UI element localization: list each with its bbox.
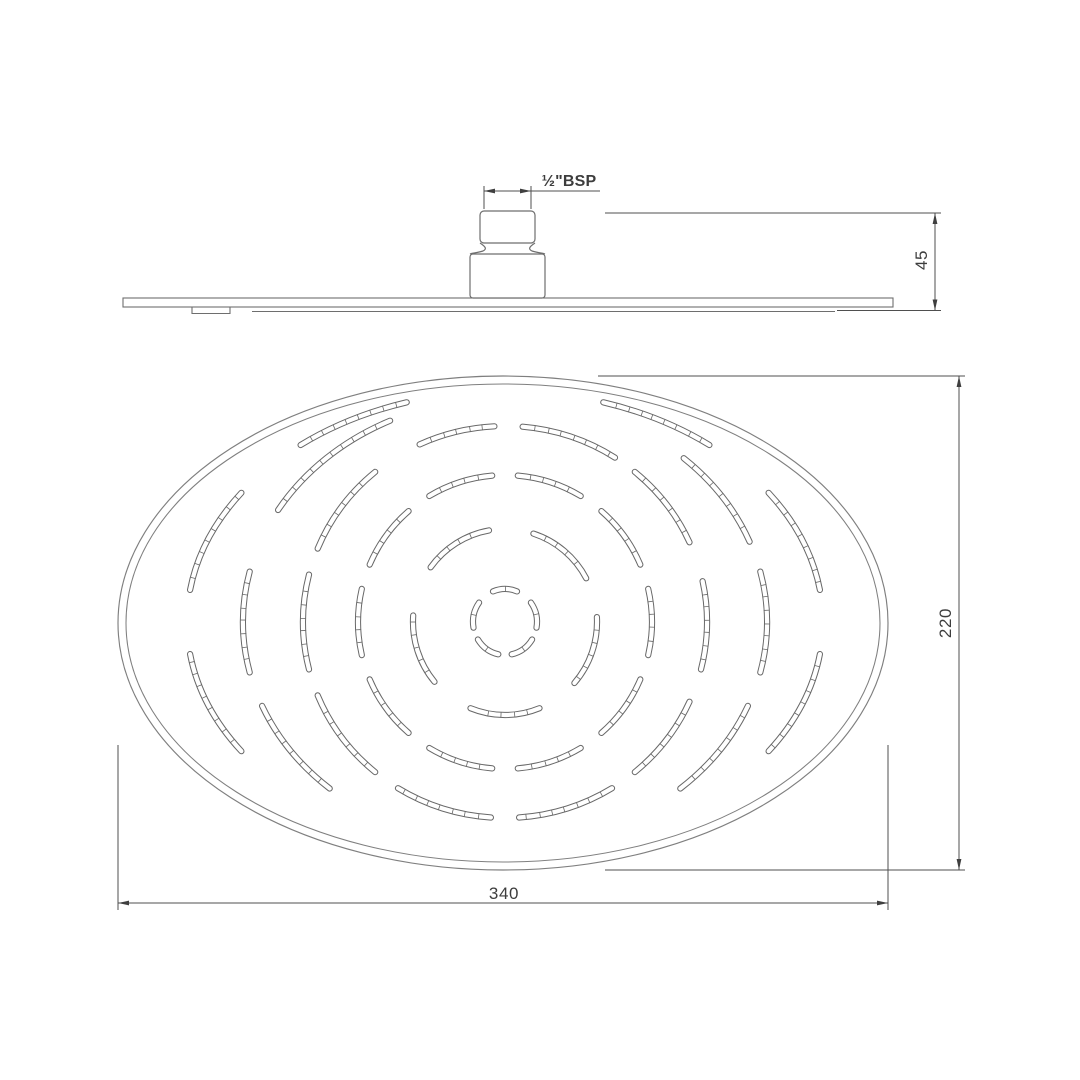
connector-height-dimension-label: 45 (912, 250, 932, 270)
drawing-svg (0, 0, 1080, 1080)
thread-size-label: ½"BSP (542, 173, 597, 191)
height-45-dimension (605, 213, 941, 311)
side-elevation-view (123, 211, 893, 314)
face-plan-view (118, 376, 888, 870)
face-height-dimension-label: 220 (936, 608, 956, 638)
face-width-dimension-label: 340 (489, 884, 519, 904)
shower-head-technical-drawing: ½"BSP 45 340 220 (0, 0, 1080, 1080)
